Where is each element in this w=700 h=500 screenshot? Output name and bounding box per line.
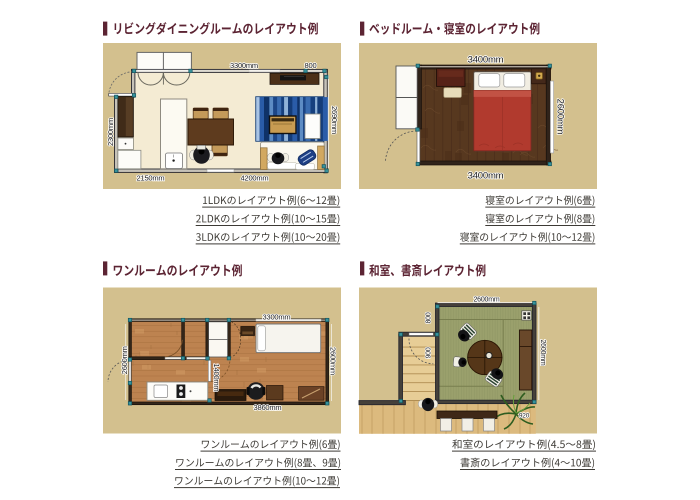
svg-text:4200mm: 4200mm <box>241 174 269 183</box>
svg-text:2600mm: 2600mm <box>329 347 338 375</box>
svg-text:3860mm: 3860mm <box>254 403 282 412</box>
svg-text:3400mm: 3400mm <box>468 171 504 182</box>
svg-text:3300mm: 3300mm <box>263 312 291 321</box>
svg-text:800: 800 <box>305 61 317 70</box>
svg-text:2600mm: 2600mm <box>554 99 565 135</box>
svg-text:3400mm: 3400mm <box>468 55 504 66</box>
svg-text:2300mm: 2300mm <box>106 118 115 146</box>
svg-text:2150mm: 2150mm <box>137 174 165 183</box>
svg-text:800: 800 <box>426 312 433 323</box>
svg-text:2690mm: 2690mm <box>330 106 339 134</box>
svg-text:2600mm: 2600mm <box>120 346 129 374</box>
svg-text:3300mm: 3300mm <box>230 61 258 70</box>
svg-text:2600mm: 2600mm <box>473 296 499 303</box>
svg-text:900: 900 <box>425 347 432 358</box>
svg-text:1400mm: 1400mm <box>212 364 221 392</box>
svg-text:920: 920 <box>519 413 530 420</box>
svg-text:2600mm: 2600mm <box>539 339 546 365</box>
